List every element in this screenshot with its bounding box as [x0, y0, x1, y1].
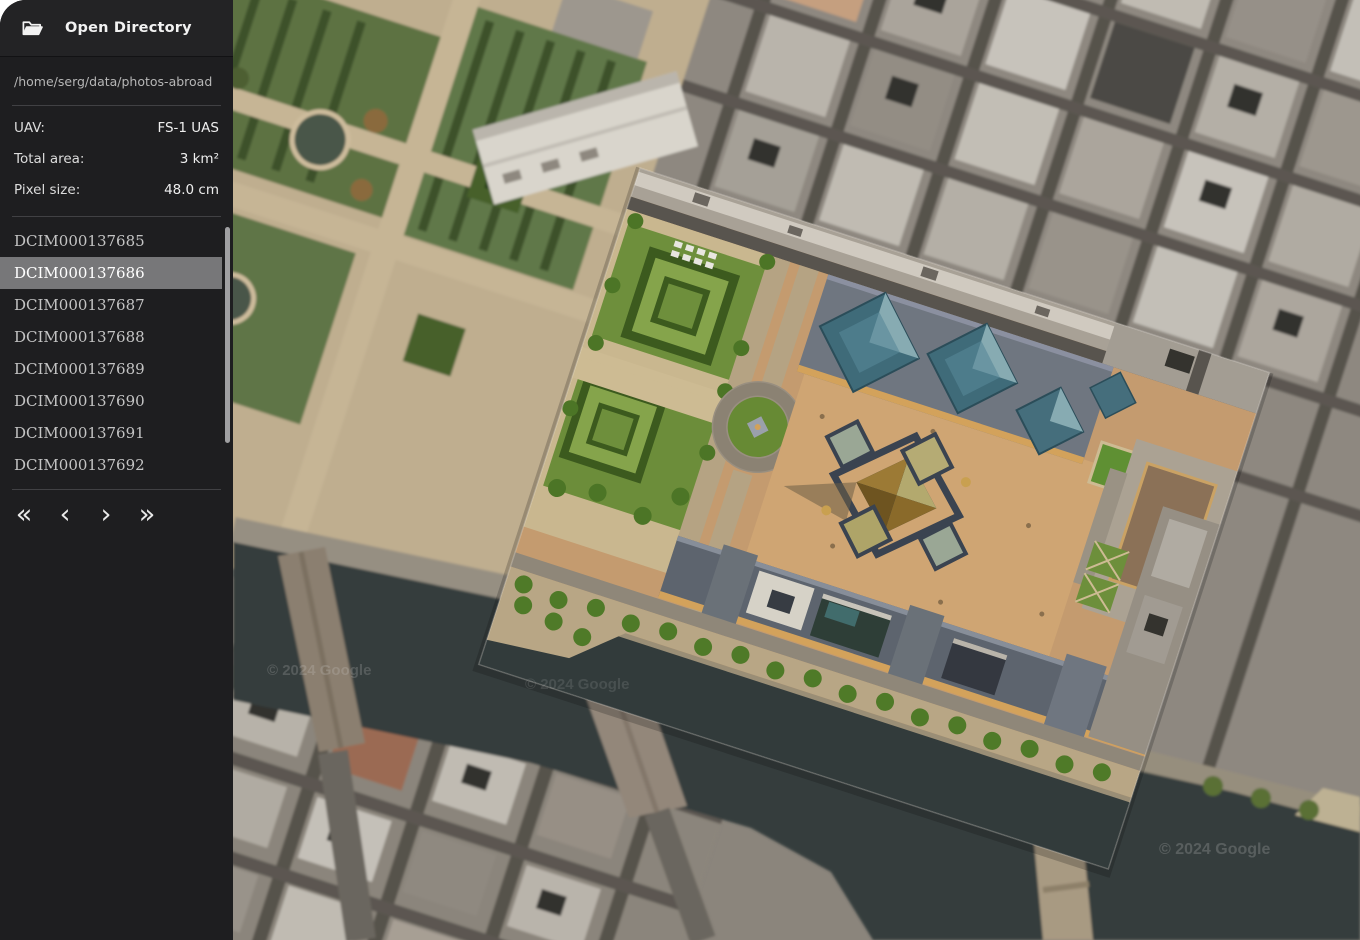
open-folder-icon	[21, 17, 44, 40]
directory-path: /home/serg/data/photos-abroad	[0, 57, 233, 105]
open-directory-label: Open Directory	[65, 20, 192, 36]
open-directory-button[interactable]: Open Directory	[0, 0, 233, 57]
aerial-map-illustration	[233, 0, 1360, 940]
dataset-metadata: UAV: FS-1 UAS Total area: 3 km² Pixel si…	[0, 106, 233, 216]
pixel-size-value: 48.0 cm	[164, 182, 219, 198]
pixel-size-label: Pixel size:	[14, 182, 80, 198]
metadata-row-uav: UAV: FS-1 UAS	[14, 120, 219, 136]
file-item[interactable]: DCIM000137692	[0, 449, 222, 481]
uav-value: FS-1 UAS	[157, 120, 219, 136]
metadata-row-total-area: Total area: 3 km²	[14, 151, 219, 167]
file-item[interactable]: DCIM000137691	[0, 417, 222, 449]
file-item[interactable]: DCIM000137688	[0, 321, 222, 353]
map-canvas[interactable]: © 2024 Google © 2024 Google © 2024 Googl…	[233, 0, 1360, 940]
total-area-label: Total area:	[14, 151, 84, 167]
uav-label: UAV:	[14, 120, 45, 136]
sidebar: Open Directory /home/serg/data/photos-ab…	[0, 0, 233, 940]
first-page-button[interactable]: «	[8, 497, 40, 533]
file-item[interactable]: DCIM000137690	[0, 385, 222, 417]
file-item[interactable]: DCIM000137685	[0, 225, 222, 257]
file-item[interactable]: DCIM000137687	[0, 289, 222, 321]
app-window: Open Directory /home/serg/data/photos-ab…	[0, 0, 1360, 940]
file-list-scrollbar[interactable]	[225, 227, 230, 443]
file-item[interactable]: DCIM000137689	[0, 353, 222, 385]
prev-page-button[interactable]: ‹	[49, 497, 81, 533]
metadata-row-pixel-size: Pixel size: 48.0 cm	[14, 182, 219, 198]
file-list: DCIM000137685 DCIM000137686 DCIM00013768…	[0, 217, 233, 489]
next-page-button[interactable]: ›	[90, 497, 122, 533]
last-page-button[interactable]: »	[131, 497, 163, 533]
file-item[interactable]: DCIM000137686	[0, 257, 222, 289]
total-area-value: 3 km²	[180, 151, 219, 167]
pagination: « ‹ › »	[0, 490, 233, 533]
